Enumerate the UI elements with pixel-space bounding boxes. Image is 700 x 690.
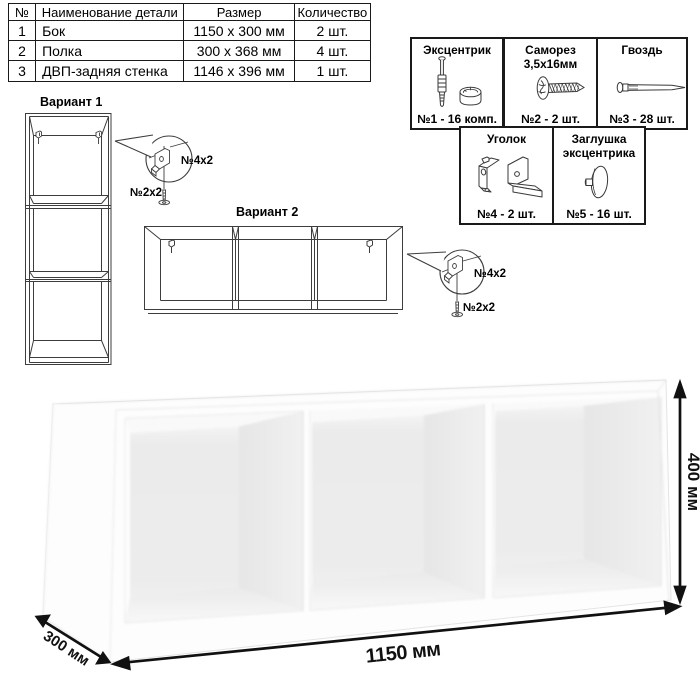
svg-text:№4х2: №4х2 <box>474 268 506 280</box>
svg-text:№4х2: №4х2 <box>181 155 213 167</box>
svg-text:400 мм: 400 мм <box>684 453 700 511</box>
svg-text:№2х2: №2х2 <box>130 187 162 199</box>
svg-text:1150 мм: 1150 мм <box>365 638 442 667</box>
svg-text:№2х2: №2х2 <box>463 302 495 314</box>
